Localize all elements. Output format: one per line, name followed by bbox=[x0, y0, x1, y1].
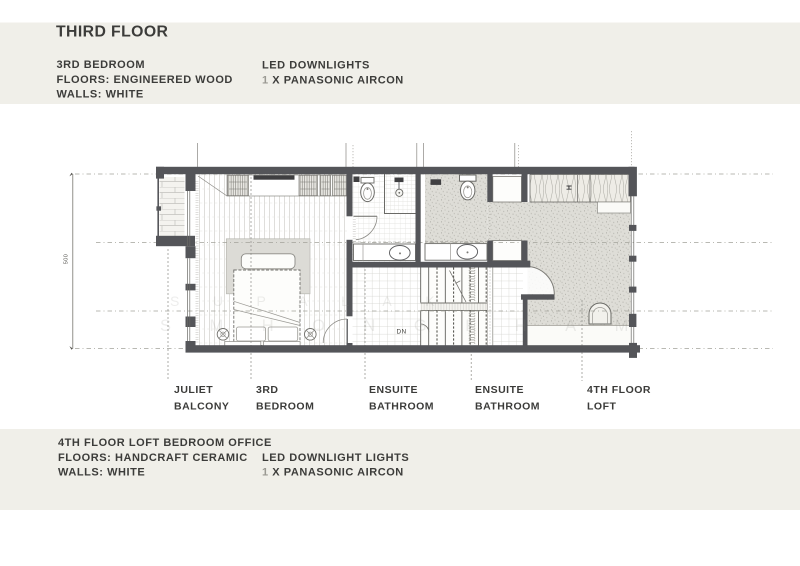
svg-text:LED DOWNLIGHTS: LED DOWNLIGHTS bbox=[262, 60, 370, 72]
svg-text:BALCONY: BALCONY bbox=[174, 401, 229, 413]
svg-text:FLOORS: ENGINEERED WOOD: FLOORS: ENGINEERED WOOD bbox=[57, 74, 233, 86]
svg-text:SUPALAK: SUPALAK bbox=[170, 293, 468, 309]
svg-text:500: 500 bbox=[64, 254, 70, 265]
svg-text:3RD BEDROOM: 3RD BEDROOM bbox=[57, 59, 146, 71]
svg-text:4TH FLOOR LOFT BEDROOM OFFICE: 4TH FLOOR LOFT BEDROOM OFFICE bbox=[58, 437, 272, 449]
svg-text:JULIET: JULIET bbox=[174, 384, 213, 396]
svg-text:SMHONGKHAM: SMHONGKHAM bbox=[160, 317, 667, 335]
svg-text:BATHROOM: BATHROOM bbox=[475, 401, 540, 413]
svg-text:LOFT: LOFT bbox=[587, 401, 616, 413]
svg-text:WALLS: WHITE: WALLS: WHITE bbox=[58, 467, 145, 479]
svg-text:1 X PANASONIC AIRCON: 1 X PANASONIC AIRCON bbox=[262, 467, 404, 479]
svg-text:4TH FLOOR: 4TH FLOOR bbox=[587, 384, 651, 396]
svg-text:FLOORS: HANDCRAFT CERAMIC: FLOORS: HANDCRAFT CERAMIC bbox=[58, 452, 248, 464]
svg-text:LED DOWNLIGHT LIGHTS: LED DOWNLIGHT LIGHTS bbox=[262, 452, 409, 464]
svg-text:ENSUITE: ENSUITE bbox=[369, 384, 418, 396]
svg-text:BATHROOM: BATHROOM bbox=[369, 401, 434, 413]
svg-text:ENSUITE: ENSUITE bbox=[475, 384, 524, 396]
svg-text:THIRD FLOOR: THIRD FLOOR bbox=[56, 23, 169, 40]
svg-text:BEDROOM: BEDROOM bbox=[256, 401, 314, 413]
svg-text:3RD: 3RD bbox=[256, 384, 279, 396]
svg-text:1 X PANASONIC AIRCON: 1 X PANASONIC AIRCON bbox=[262, 74, 404, 86]
svg-text:WALLS: WHITE: WALLS: WHITE bbox=[57, 89, 144, 101]
